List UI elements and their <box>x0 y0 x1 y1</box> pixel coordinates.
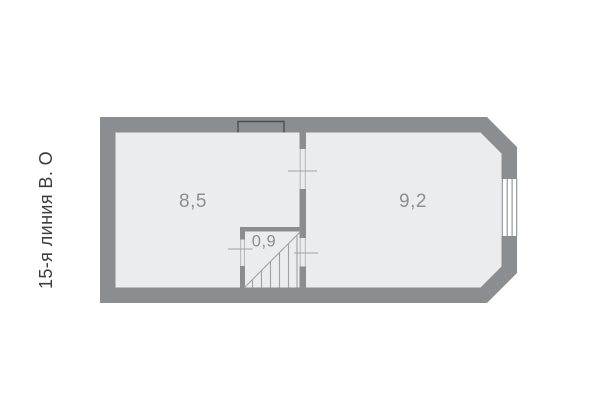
stair-enclosure-wall-left <box>240 232 245 240</box>
stair-enclosure-wall-left <box>240 266 245 288</box>
stair-enclosure-wall-top <box>240 227 306 232</box>
partition-wall-segment <box>300 267 307 288</box>
floor-plan: 8,5 9,2 0,9 <box>0 0 600 416</box>
room-area-label-left: 8,5 <box>179 191 207 212</box>
room-area-label-right: 9,2 <box>399 191 427 212</box>
floor-area <box>116 133 502 288</box>
floor-plan-canvas: 15-я линия В. О <box>0 0 600 416</box>
partition-wall-segment <box>300 133 307 150</box>
room-area-label-stairwell: 0,9 <box>252 233 276 251</box>
window-opening <box>502 179 518 236</box>
